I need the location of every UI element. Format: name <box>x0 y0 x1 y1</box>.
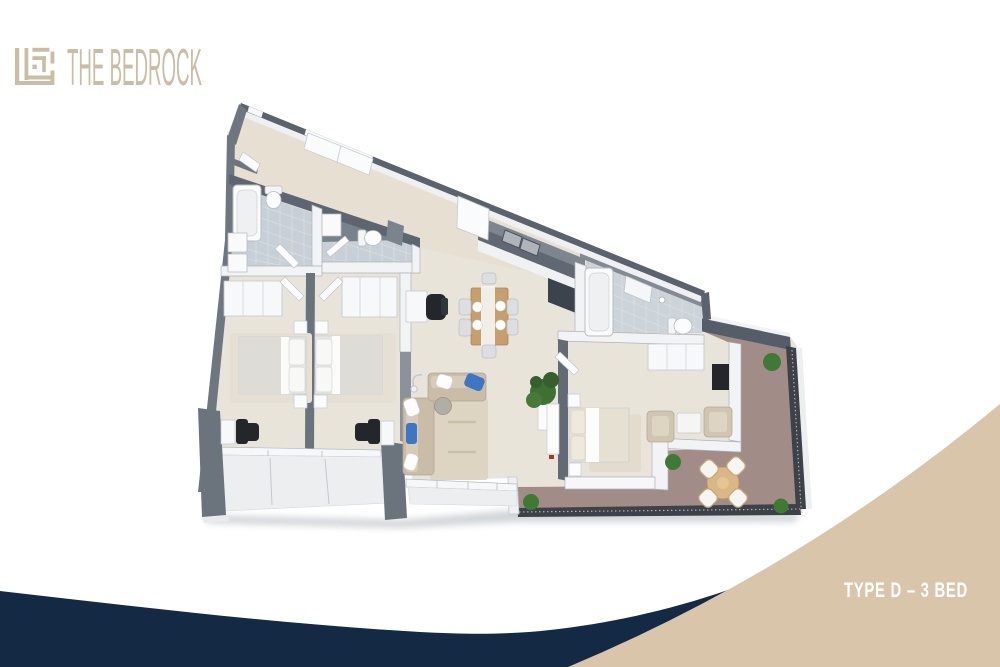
svg-text:THE BEDROCK: THE BEDROCK <box>67 39 202 97</box>
svg-text:TYPE D – 3 BED: TYPE D – 3 BED <box>844 579 968 602</box>
